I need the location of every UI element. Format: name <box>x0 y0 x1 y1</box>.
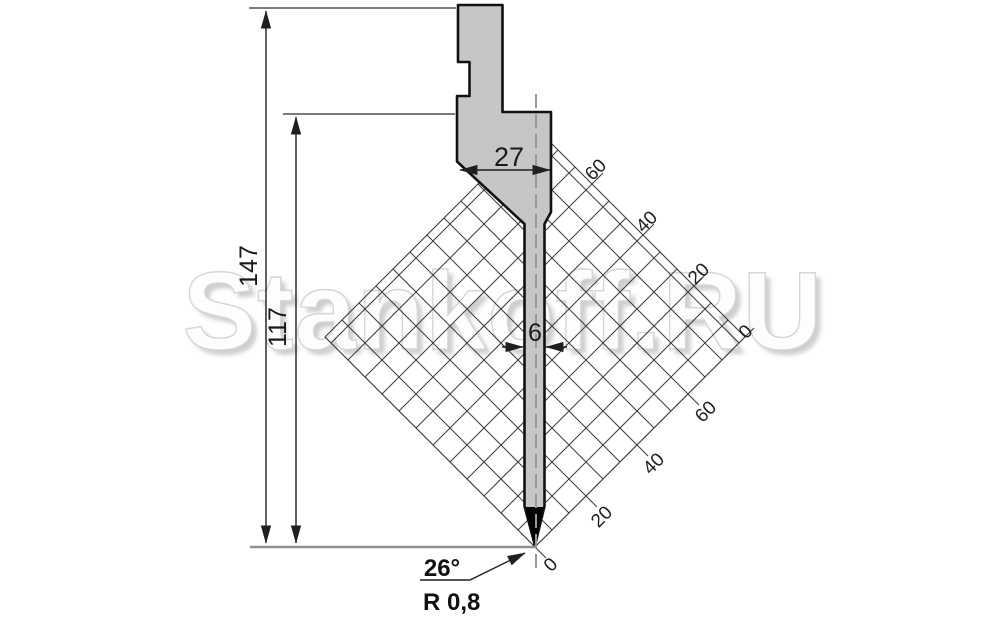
tip-angle-label: 26° <box>424 555 460 582</box>
technical-drawing-canvas: Stankoff.RU Stankoff.RU 60 40 20 0 60 40… <box>0 0 1000 618</box>
grid-label: 0 <box>540 554 562 576</box>
punch-drawing-svg: Stankoff.RU Stankoff.RU 60 40 20 0 60 40… <box>0 0 1000 618</box>
grid-tick <box>637 445 648 456</box>
dim-147-label: 147 <box>235 245 263 287</box>
grid-label: 40 <box>632 207 662 237</box>
grid-label: 60 <box>581 155 611 185</box>
dim-6-label: 6 <box>528 319 542 347</box>
dim-27-label: 27 <box>494 142 524 172</box>
grid-label: 40 <box>639 449 669 479</box>
grid-tick <box>688 394 699 405</box>
grid-tick <box>586 496 597 507</box>
tip-radius-label: R 0,8 <box>423 589 480 616</box>
grid-label: 20 <box>587 502 617 532</box>
dim-117-label: 117 <box>264 307 292 347</box>
